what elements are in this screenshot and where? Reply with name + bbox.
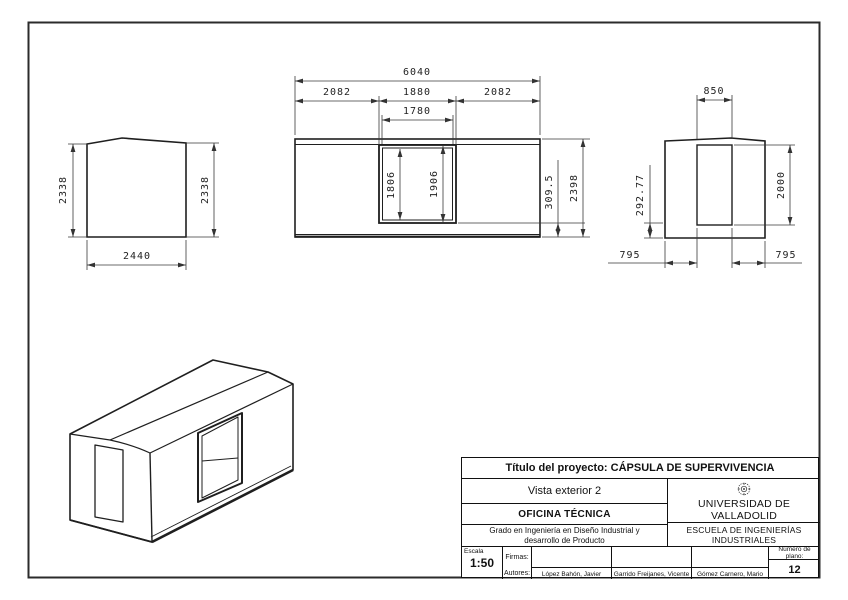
author-name-3: Gómez Carnero, Mario <box>692 567 768 579</box>
signature-cell-2: Garrido Freijanes, Vicente <box>612 547 692 579</box>
view-name: Vista exterior 2 <box>462 479 667 504</box>
degree-line-1: Grado en Ingeniería en Diseño Industrial… <box>489 526 639 536</box>
dim-side-left-width: 2440 <box>123 251 151 262</box>
signatures-labels-cell: Firmas: Autores: <box>503 547 532 579</box>
dim-front-seg-center: 1880 <box>403 87 431 98</box>
iso-floor-edge-line <box>151 466 291 537</box>
dim-side-right-door-width: 850 <box>703 86 724 97</box>
dim-side-right-offset-right: 795 <box>775 250 796 261</box>
dim-front-total-height: 2398 <box>569 174 580 202</box>
iso-ridge-line <box>110 372 268 440</box>
iso-end-top-edge <box>70 434 150 453</box>
dim-front-door-top-width: 1780 <box>403 106 431 117</box>
university-seal-icon <box>736 481 752 497</box>
dim-side-right-door-height: 2000 <box>776 171 787 199</box>
view-side-right: 850 292.77 2000 795 795 <box>608 86 802 268</box>
iso-eave-line <box>150 384 293 453</box>
author-name-2: Garrido Freijanes, Vicente <box>612 567 691 579</box>
scale-value: 1:50 <box>462 556 502 570</box>
view-isometric <box>70 360 293 542</box>
dim-front-door-outer-height: 1906 <box>429 170 440 198</box>
signature-cell-1: López Bahón, Javier <box>532 547 612 579</box>
degree-name: Grado en Ingeniería en Diseño Industrial… <box>462 525 667 546</box>
front-dimension-lines <box>295 76 590 237</box>
authors-label: Autores: <box>503 567 531 579</box>
drawing-sheet: 2338 2338 2440 6040 <box>0 0 848 600</box>
scale-cell: Escala 1:50 <box>462 547 503 579</box>
iso-end-base-edge <box>70 520 152 542</box>
iso-silhouette <box>70 360 293 542</box>
school-name: ESCUELA DE INGENIERÍAS INDUSTRIALES <box>668 523 820 546</box>
dim-front-seg-left: 2082 <box>323 87 351 98</box>
plan-number-label: Número de plano: <box>769 547 818 560</box>
title-block: Título del proyecto: CÁPSULA DE SUPERVIV… <box>461 457 819 578</box>
dim-side-right-base-offset: 292.77 <box>635 174 646 216</box>
iso-base-edge-thick <box>152 470 293 542</box>
dim-side-left-height-left: 2338 <box>58 176 69 204</box>
dim-front-total-width: 6040 <box>403 67 431 78</box>
title-block-left-column: Vista exterior 2 OFICINA TÉCNICA Grado e… <box>462 479 668 546</box>
title-block-bottom-band: Escala 1:50 Firmas: Autores: López Bahón… <box>462 546 818 579</box>
university-cell: UNIVERSIDAD DE VALLADOLID <box>668 479 820 523</box>
view-front: 6040 2082 1880 2082 1780 1806 1906 309.5… <box>295 67 590 237</box>
iso-interior-floor-line <box>202 458 238 461</box>
university-name: UNIVERSIDAD DE VALLADOLID <box>668 498 820 522</box>
iso-end-door <box>95 445 123 522</box>
side-left-outline <box>87 138 186 237</box>
office-name: OFICINA TÉCNICA <box>462 504 667 525</box>
signature-cell-3: Gómez Carnero, Mario <box>692 547 769 579</box>
author-name-1: López Bahón, Javier <box>532 567 611 579</box>
dim-side-right-offset-left: 795 <box>619 250 640 261</box>
dim-front-base-offset: 309.5 <box>544 174 555 209</box>
iso-front-corner-edge <box>150 453 152 541</box>
scale-label: Escala <box>464 548 484 555</box>
degree-line-2: desarrollo de Producto <box>524 536 605 546</box>
side-right-door <box>697 145 732 225</box>
title-block-right-column: UNIVERSIDAD DE VALLADOLID ESCUELA DE ING… <box>668 479 820 546</box>
plan-number-value: 12 <box>769 560 818 579</box>
dim-side-left-height-right: 2338 <box>200 176 211 204</box>
plan-number-cell: Número de plano: 12 <box>769 547 818 579</box>
dim-front-seg-right: 2082 <box>484 87 512 98</box>
side-right-outline <box>665 138 765 238</box>
project-title: Título del proyecto: CÁPSULA DE SUPERVIV… <box>462 458 818 479</box>
dim-front-door-inner-height: 1806 <box>386 171 397 199</box>
view-side-left: 2338 2338 2440 <box>58 138 219 270</box>
signatures-label: Firmas: <box>503 547 531 567</box>
